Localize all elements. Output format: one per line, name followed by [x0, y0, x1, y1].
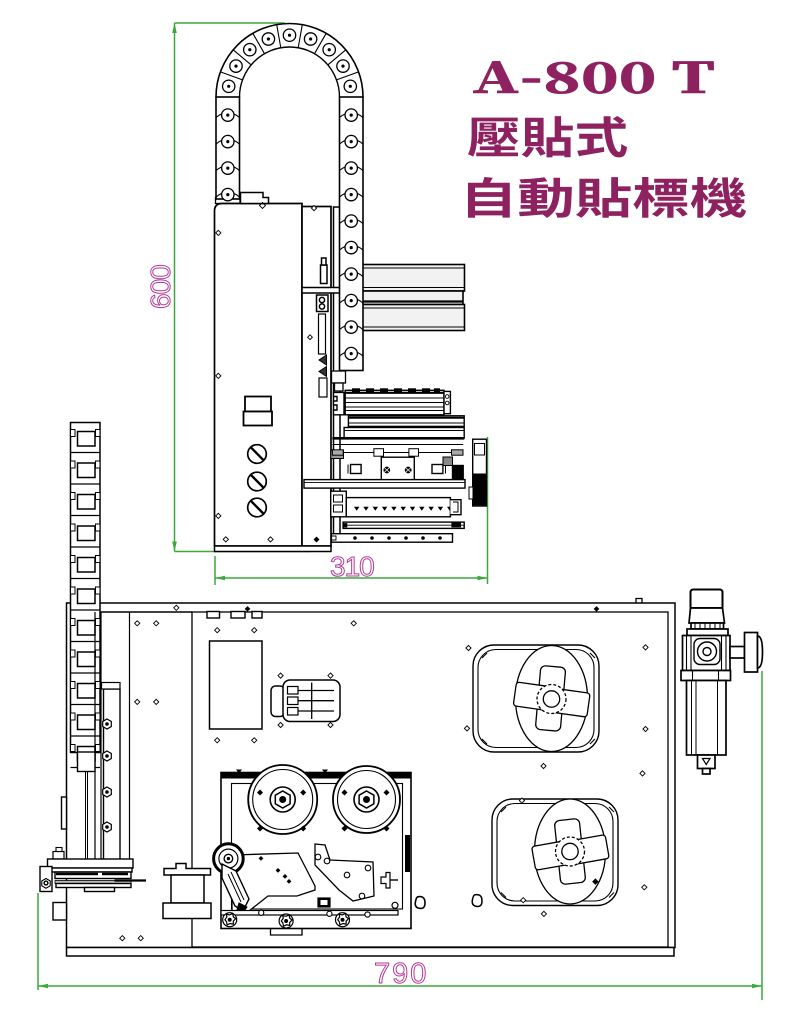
svg-text:310: 310: [330, 551, 374, 582]
svg-text:600: 600: [145, 265, 176, 309]
svg-text:790: 790: [374, 958, 428, 990]
